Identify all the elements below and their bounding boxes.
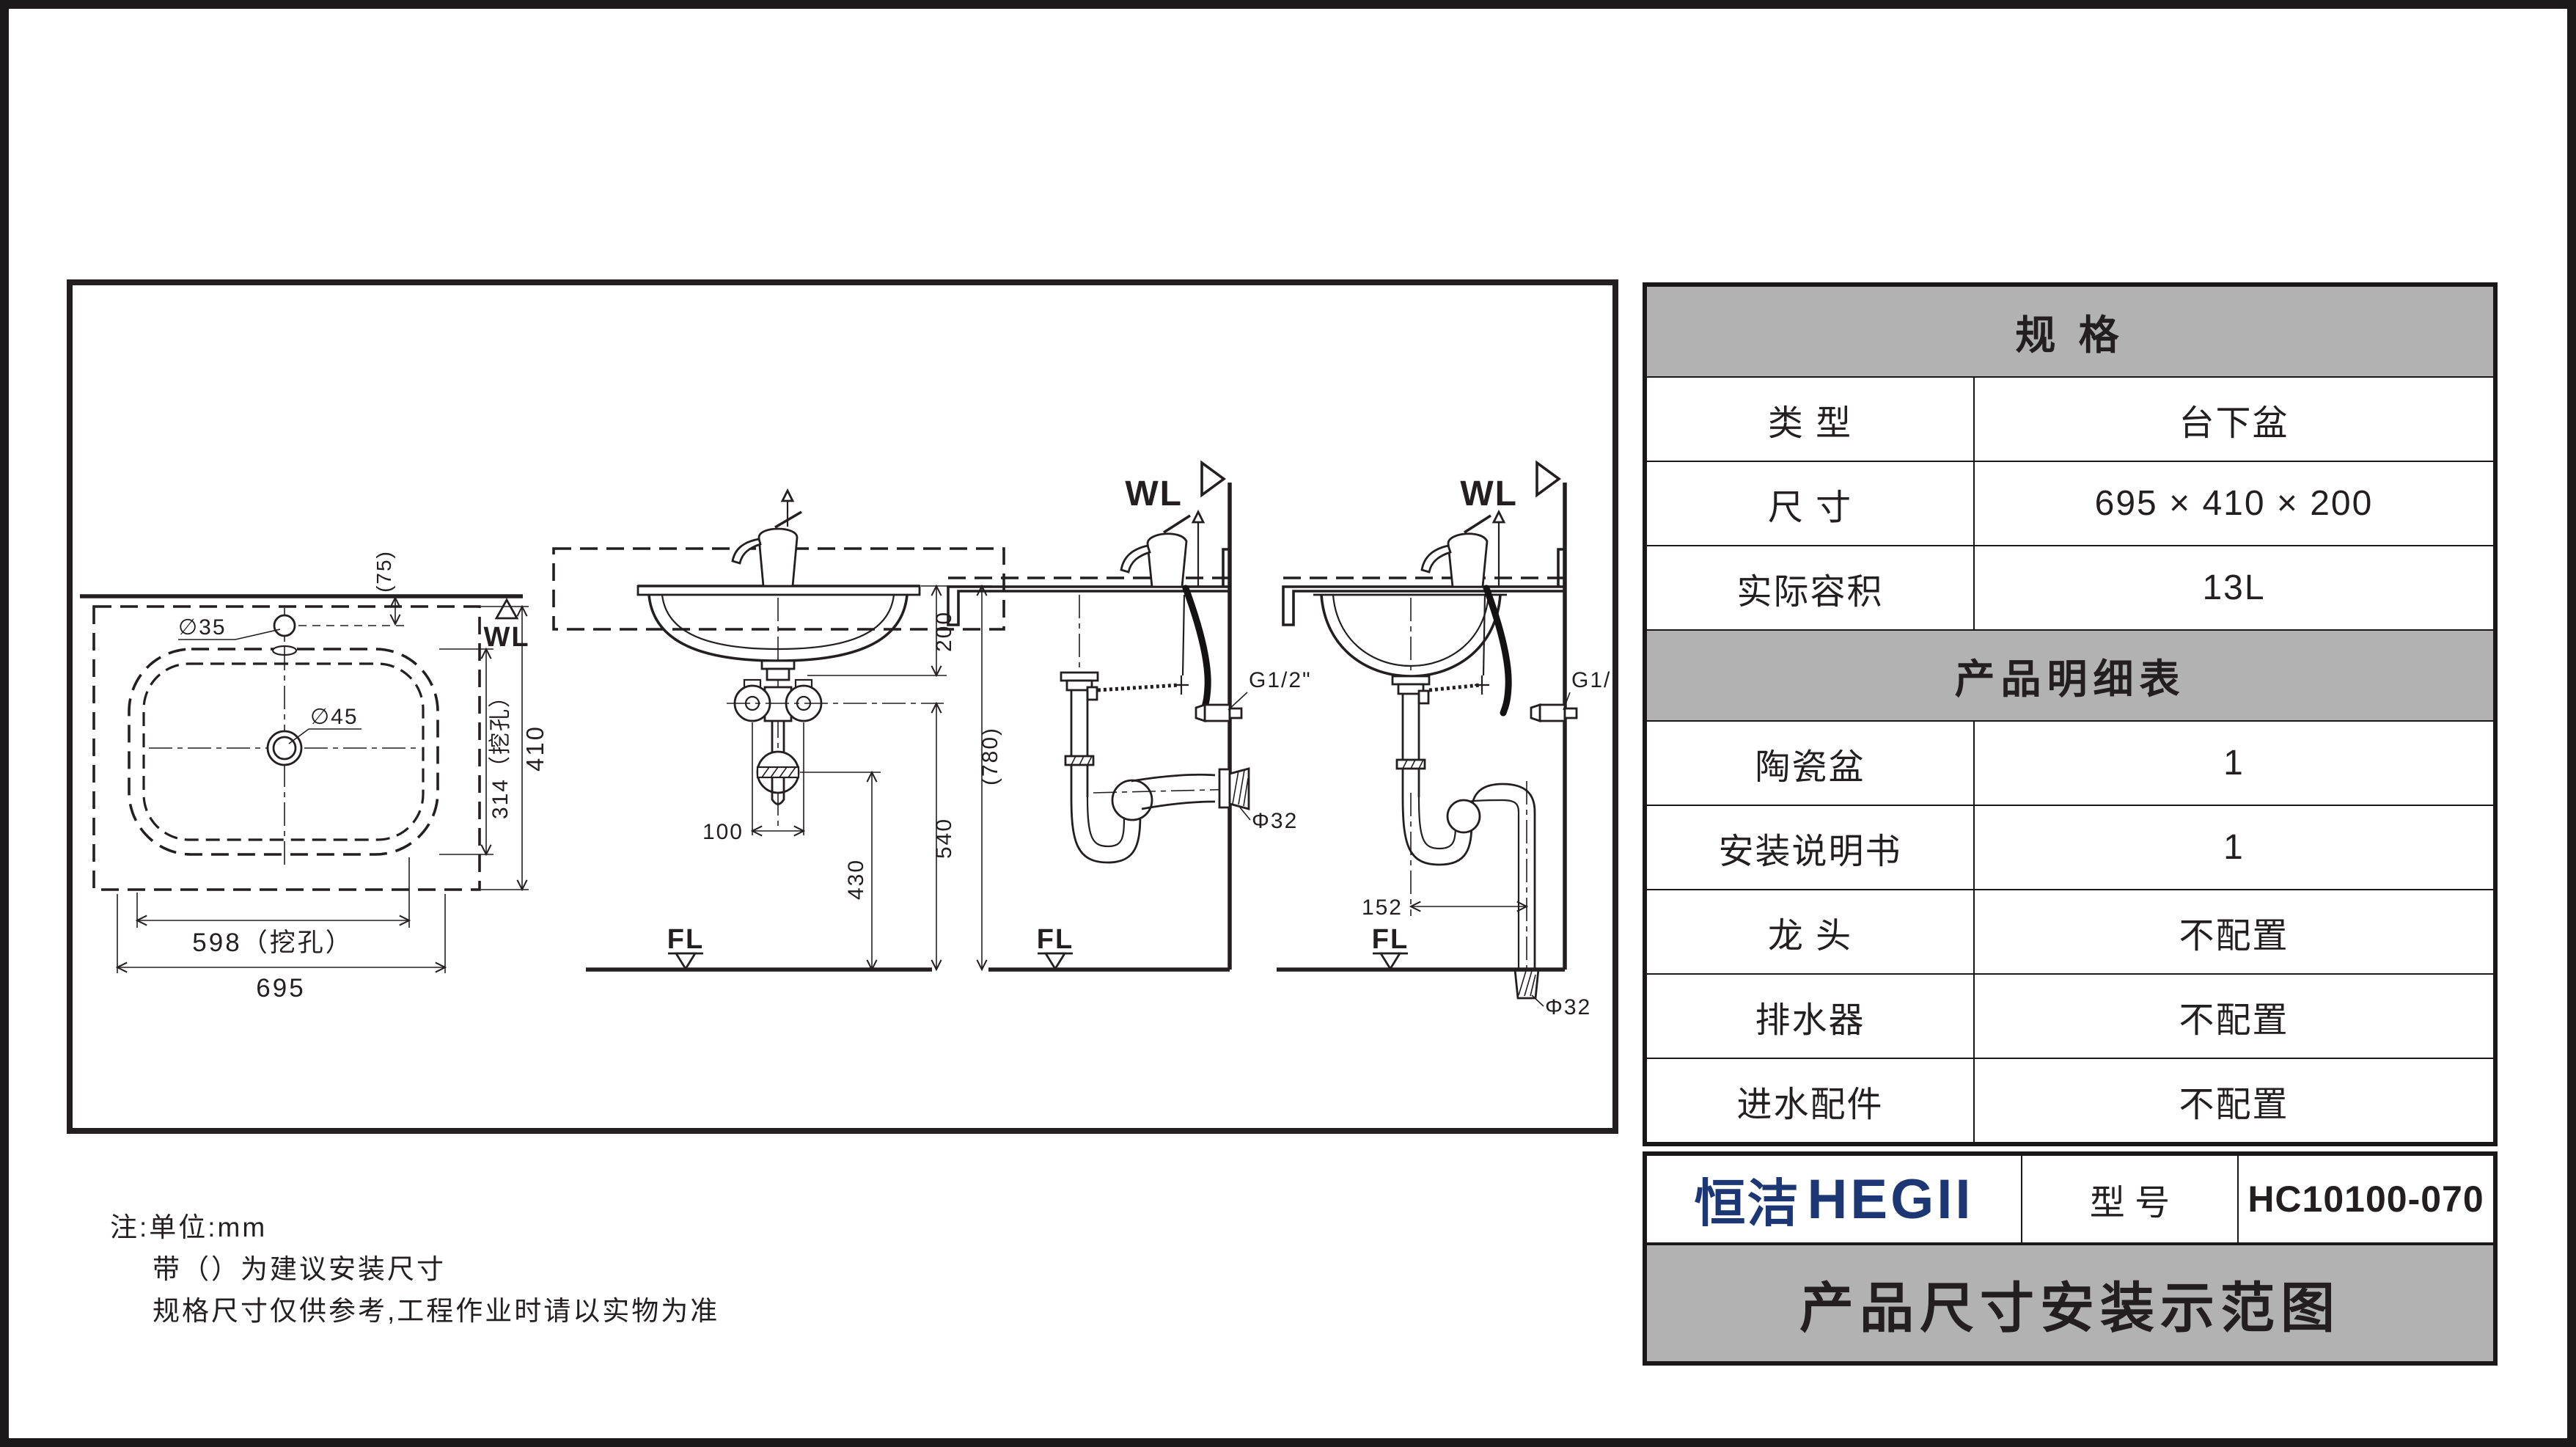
side2-wl-label: WL	[1460, 475, 1518, 513]
dim-200: 200	[932, 611, 956, 652]
leader-35b	[235, 629, 280, 640]
row-value: 13L	[1975, 546, 2493, 629]
s-trap	[1392, 676, 1544, 1004]
faucet	[733, 491, 801, 586]
leader-d32	[1532, 995, 1544, 1006]
table-row: 排水器 不配置	[1647, 973, 2493, 1058]
drain-flange	[1392, 676, 1429, 684]
popup-wire	[1483, 595, 1485, 675]
drain-hole-dia-label: ∅45	[310, 705, 359, 729]
dim-75: (75)	[373, 550, 395, 593]
water-level-icon	[1202, 463, 1224, 495]
side1-g12-label: G1/2"	[1249, 668, 1312, 692]
row-label: 尺 寸	[1647, 462, 1975, 545]
row-label: 安装说明书	[1647, 806, 1975, 889]
popup-knob	[782, 491, 793, 501]
spec-header: 规 格	[1647, 287, 2493, 376]
wall-nipple	[1230, 708, 1241, 718]
brand-cn: 恒洁	[1695, 1162, 1800, 1237]
dim-430: 430	[844, 859, 868, 900]
table-row: 安装说明书 1	[1647, 805, 2493, 889]
water-level-icon	[1537, 463, 1559, 495]
faucet-hole	[274, 615, 295, 636]
popup-linkage	[1098, 685, 1180, 690]
row-value: 台下盆	[1975, 378, 2493, 461]
row-value: 不配置	[1975, 975, 2493, 1058]
brand-logo: 恒洁 HEGII	[1647, 1156, 2022, 1242]
plan-wl-label: WL	[483, 622, 529, 653]
side1-fl-label: FL	[1037, 924, 1074, 955]
row-value: 不配置	[1975, 890, 2493, 973]
sheet-title: 产品尺寸安装示范图	[1647, 1242, 2493, 1361]
row-label: 实际容积	[1647, 546, 1975, 629]
dim-152: 152	[1362, 895, 1403, 920]
popup-knob	[1494, 512, 1504, 522]
dim-314: 314（挖孔）	[488, 684, 513, 819]
dim-598: 598（挖孔）	[192, 928, 353, 957]
side2-g12-label: G1/2"	[1571, 668, 1612, 692]
dim-100: 100	[702, 820, 744, 844]
p-trap	[1061, 673, 1249, 862]
brand-en: HEGII	[1808, 1168, 1974, 1231]
faucet-body	[759, 529, 797, 586]
plan-view: WL ∅35 ∅45 (75) 314（挖孔） 410 598（挖孔）	[80, 550, 548, 1003]
water-level-icon	[496, 600, 517, 618]
trap-joint-nut	[1112, 780, 1152, 820]
note-line-2: 带（）为建议安装尺寸	[110, 1248, 719, 1290]
row-value: 1	[1975, 722, 2493, 805]
faucet	[1121, 512, 1203, 587]
valve-body	[1205, 705, 1230, 721]
floor-level-icon	[1381, 953, 1400, 969]
spec-table: 规 格 类 型 台下盆 尺 寸 695 × 410 × 200 实际容积 13L…	[1643, 282, 2498, 1146]
faucet-lever	[1164, 516, 1190, 532]
front-fl-label: FL	[667, 924, 704, 955]
side2-fl-label: FL	[1372, 924, 1409, 955]
supply-hose	[1186, 588, 1208, 713]
table-row: 尺 寸 695 × 410 × 200	[1647, 461, 2493, 545]
dim-780: (780)	[978, 727, 1002, 785]
popup-knob	[1193, 512, 1203, 522]
drain-nut	[767, 669, 789, 680]
side2-d32-label: Φ32	[1545, 995, 1591, 1019]
row-label: 类 型	[1647, 378, 1975, 461]
faucet-body	[1148, 534, 1186, 587]
side1-wl-label: WL	[1125, 475, 1183, 513]
floor-level-icon	[676, 953, 695, 969]
drain-flange	[762, 661, 794, 669]
floor-level-icon	[1046, 953, 1065, 969]
drain-assembly	[727, 661, 944, 805]
row-label: 进水配件	[1647, 1059, 1975, 1142]
row-label: 排水器	[1647, 975, 1975, 1058]
valve-handle	[1196, 705, 1205, 721]
trap-joint-nut	[1447, 800, 1480, 832]
drawing-frame: WL ∅35 ∅45 (75) 314（挖孔） 410 598（挖孔）	[67, 279, 1618, 1134]
angle-valve	[1196, 705, 1241, 721]
faucet-spout	[1422, 546, 1450, 572]
unit-notes: 注:单位:mm 带（）为建议安装尺寸 规格尺寸仅供参考,工程作业时请以实物为准	[110, 1206, 719, 1332]
side1-d32-label: Φ32	[1252, 809, 1298, 833]
angle-valve	[1531, 705, 1577, 721]
valve-body	[1540, 705, 1565, 721]
row-label: 龙 头	[1647, 890, 1975, 973]
dim-540: 540	[932, 818, 956, 859]
front-view: 100 200 540 (780) 430 FL	[554, 491, 1004, 970]
model-value: HC10100-070	[2239, 1156, 2493, 1242]
valve-handle	[1531, 705, 1540, 721]
table-row: 陶瓷盆 1	[1647, 720, 2493, 805]
faucet	[1422, 512, 1504, 587]
faucet-body	[1448, 534, 1487, 587]
wall-nipple	[1565, 708, 1577, 718]
popup-wire	[1183, 595, 1184, 675]
faucet-spout	[733, 539, 760, 563]
table-row: 龙 头 不配置	[1647, 889, 2493, 973]
technical-drawing: WL ∅35 ∅45 (75) 314（挖孔） 410 598（挖孔）	[73, 285, 1612, 1128]
dim-410: 410	[521, 725, 548, 772]
row-value: 1	[1975, 806, 2493, 889]
side-view-wall-drain: WL G1/2"	[948, 463, 1312, 970]
side-nut	[1087, 687, 1097, 700]
table-row: 实际容积 13L	[1647, 545, 2493, 629]
table-row: 进水配件 不配置	[1647, 1058, 2493, 1142]
dim-695: 695	[256, 974, 305, 1003]
row-value: 不配置	[1975, 1059, 2493, 1142]
side-nut	[1419, 691, 1428, 703]
row-label: 陶瓷盆	[1647, 722, 1975, 805]
faucet-lever	[1464, 516, 1491, 532]
side-view-floor-drain: WL G1/2"	[1277, 463, 1612, 1019]
row-value: 695 × 410 × 200	[1975, 462, 2493, 545]
trap-arm-top	[1131, 774, 1215, 781]
popup-linkage	[1429, 685, 1480, 690]
faucet-hole-dia-label: ∅35	[178, 615, 227, 640]
table-row: 类 型 台下盆	[1647, 376, 2493, 461]
drain-flange	[1061, 673, 1098, 681]
note-line-3: 规格尺寸仅供参考,工程作业时请以实物为准	[110, 1290, 719, 1332]
wall-flange	[1219, 769, 1230, 807]
model-label: 型 号	[2022, 1156, 2239, 1242]
detail-header: 产品明细表	[1647, 629, 2493, 720]
faucet-spout	[1121, 546, 1150, 572]
title-block: 恒洁 HEGII 型 号 HC10100-070 产品尺寸安装示范图	[1643, 1151, 2498, 1366]
note-line-1: 注:单位:mm	[110, 1206, 719, 1248]
